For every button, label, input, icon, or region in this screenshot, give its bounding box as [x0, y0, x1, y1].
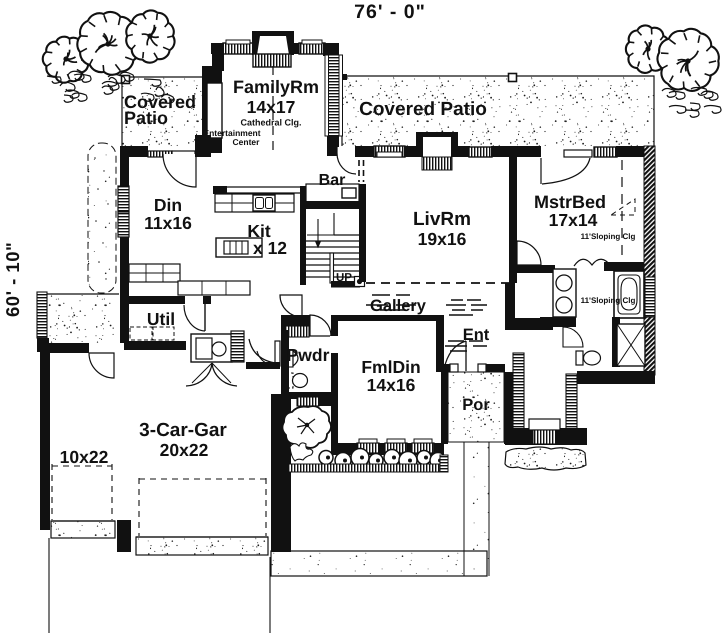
svg-text:11'Sloping Clg: 11'Sloping Clg — [581, 296, 636, 305]
svg-text:FamilyRm: FamilyRm — [233, 77, 319, 97]
svg-text:60' - 10": 60' - 10" — [2, 242, 23, 317]
svg-text:Bar: Bar — [319, 172, 346, 189]
svg-text:Din: Din — [154, 195, 182, 215]
svg-text:11'Sloping Clg: 11'Sloping Clg — [581, 232, 636, 241]
svg-text:LivRm: LivRm — [413, 209, 471, 230]
svg-text:Patio: Patio — [124, 108, 168, 128]
svg-text:10x22: 10x22 — [60, 447, 109, 467]
svg-text:20x22: 20x22 — [160, 440, 209, 460]
svg-text:UP: UP — [336, 272, 352, 284]
svg-text:Covered Patio: Covered Patio — [359, 99, 487, 120]
svg-text:FmlDin: FmlDin — [361, 357, 420, 377]
svg-text:17x14: 17x14 — [549, 210, 598, 230]
svg-text:19x16: 19x16 — [418, 229, 467, 249]
svg-text:Ent: Ent — [463, 326, 490, 344]
svg-text:Por: Por — [462, 396, 490, 414]
svg-text:Center: Center — [233, 137, 261, 147]
svg-text:MstrBed: MstrBed — [534, 192, 606, 212]
svg-text:x 12: x 12 — [253, 238, 287, 258]
svg-text:Util: Util — [147, 309, 175, 329]
svg-text:14x16: 14x16 — [367, 375, 416, 395]
svg-text:Gallery: Gallery — [370, 297, 427, 315]
svg-text:3-Car-Gar: 3-Car-Gar — [139, 420, 227, 441]
svg-text:11x16: 11x16 — [144, 213, 192, 233]
svg-text:Cathedral Clg.: Cathedral Clg. — [240, 118, 301, 128]
svg-text:Pwdr: Pwdr — [287, 345, 330, 365]
svg-text:14x17: 14x17 — [247, 97, 296, 117]
svg-text:76' - 0": 76' - 0" — [354, 1, 426, 23]
